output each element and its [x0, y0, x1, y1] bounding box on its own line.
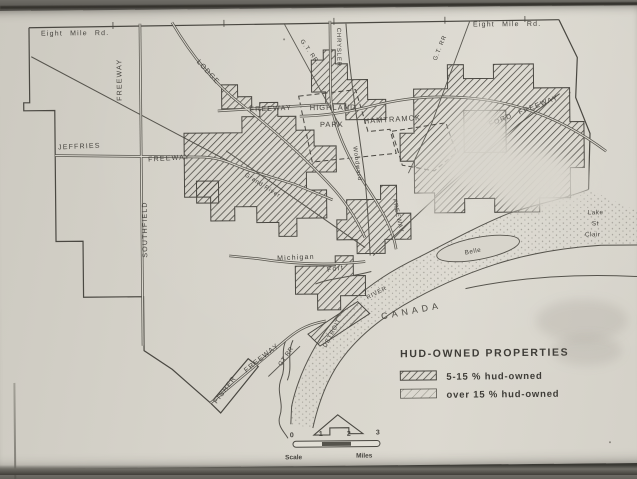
canada-inner-coast: [465, 275, 637, 289]
paper-sheet: Eight Mile Rd. Eight Mile Rd. FREEWAY SO…: [0, 5, 637, 469]
scale-tick-3: 3: [376, 429, 380, 436]
label-lake-line2: St: [592, 220, 599, 227]
label-gt-rr-right: G.T. RR: [433, 34, 449, 61]
label-southfield-freeway-top: FREEWAY: [116, 59, 123, 101]
photo-background: Eight Mile Rd. Eight Mile Rd. FREEWAY SO…: [0, 0, 637, 475]
scale-label: Scale: [285, 454, 302, 461]
scale-tick-1: 1: [319, 431, 323, 438]
label-fisher-freeway: FREEWAY: [243, 342, 280, 374]
hatched-area-upper-left: [222, 85, 252, 109]
legend-item-1: 5-15 % hud-owned: [446, 371, 542, 383]
label-gt-rr-south: GT RR: [277, 345, 295, 367]
label-lake-line1: Lake: [588, 209, 604, 216]
label-lodge: LODGE: [195, 59, 221, 86]
label-southfield: SOUTHFIELD: [142, 201, 150, 257]
dust-speck: [569, 92, 571, 94]
photo-bottom-edge: [0, 465, 637, 475]
scan-smudge: [414, 149, 461, 219]
scan-smudge: [534, 159, 590, 210]
dust-speck: [283, 38, 285, 40]
label-chrysler: CHRYSLER: [335, 28, 341, 67]
legend: HUD-OWNED PROPERTIES 5-15 % hud-owned ov…: [400, 347, 570, 402]
label-davison-freeway: FREEWAY: [250, 105, 293, 114]
detroit-hud-map: Eight Mile Rd. Eight Mile Rd. FREEWAY SO…: [0, 5, 637, 469]
scale-tick-0: 0: [290, 432, 294, 439]
scale-tick-2: 2: [347, 431, 351, 438]
label-michigan: Michigan: [277, 254, 315, 263]
miles-label: Miles: [356, 452, 373, 459]
label-jeffries: JEFFRIES: [58, 143, 101, 152]
label-highland: HIGHLAND: [310, 103, 357, 112]
legend-title: HUD-OWNED PROPERTIES: [400, 347, 569, 361]
label-eight-mile-right: Eight Mile Rd.: [473, 21, 541, 29]
label-park: PARK: [320, 120, 344, 129]
label-lake-line3: Clair: [585, 231, 601, 238]
dust-speck: [609, 441, 611, 443]
legend-item-2: over 15 % hud-owned: [446, 389, 559, 401]
legend-swatch-dense: [400, 371, 436, 380]
legend-swatch-light: [400, 389, 436, 398]
hatched-area-west-square: [196, 181, 218, 203]
label-gt-rr-center: G.T. RR.: [298, 39, 320, 66]
scale-bar-filled-segment: [322, 442, 351, 446]
label-fisher: FISHER: [213, 375, 239, 405]
label-eight-mile-left: Eight Mile Rd.: [41, 30, 109, 38]
